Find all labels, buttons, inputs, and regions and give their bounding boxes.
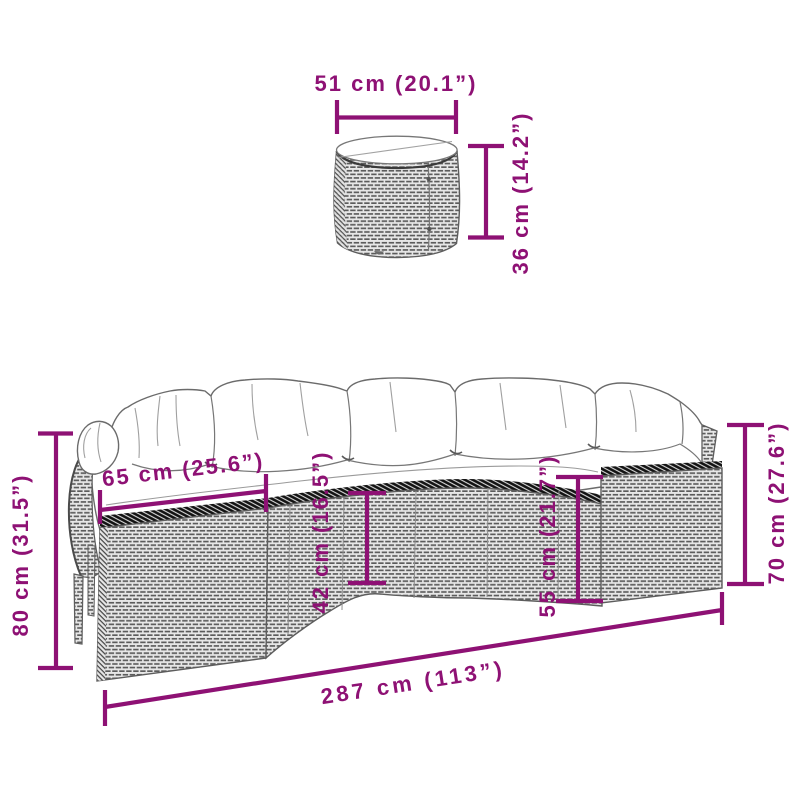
svg-text:51 cm (20.1”): 51 cm (20.1”) [315, 71, 478, 96]
svg-text:80 cm (31.5”): 80 cm (31.5”) [8, 474, 33, 637]
svg-text:55 cm (21.7”): 55 cm (21.7”) [535, 455, 560, 618]
svg-text:36 cm (14.2”): 36 cm (14.2”) [508, 112, 533, 275]
svg-text:42 cm (16.5”): 42 cm (16.5”) [308, 451, 333, 614]
svg-text:70 cm (27.6”): 70 cm (27.6”) [764, 422, 789, 585]
